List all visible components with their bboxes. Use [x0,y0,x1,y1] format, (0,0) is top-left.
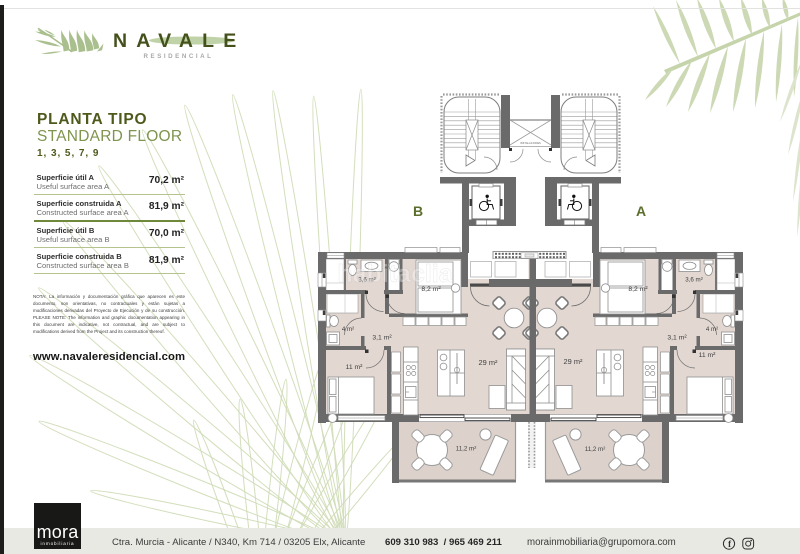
svg-text:4 m²: 4 m² [706,326,718,333]
svg-text:3,1 m²: 3,1 m² [372,335,392,342]
svg-text:A: A [636,203,646,219]
svg-text:11,2 m²: 11,2 m² [585,446,606,453]
svg-text:4 m²: 4 m² [342,326,354,333]
svg-text:INSTALACIONES: INSTALACIONES [520,142,541,145]
svg-text:11 m²: 11 m² [346,364,364,371]
svg-text:8,2 m²: 8,2 m² [628,286,648,293]
svg-text:f: f [728,539,732,549]
svg-text:habitaclia: habitaclia [337,260,453,288]
svg-text:3,1 m²: 3,1 m² [667,335,687,342]
svg-text:11,2 m²: 11,2 m² [456,446,477,453]
svg-text:29 m²: 29 m² [479,358,498,367]
svg-text:29 m²: 29 m² [564,357,583,366]
svg-text:B: B [413,203,423,219]
svg-text:3,6 m²: 3,6 m² [685,277,703,284]
svg-text:11 m²: 11 m² [699,352,717,359]
